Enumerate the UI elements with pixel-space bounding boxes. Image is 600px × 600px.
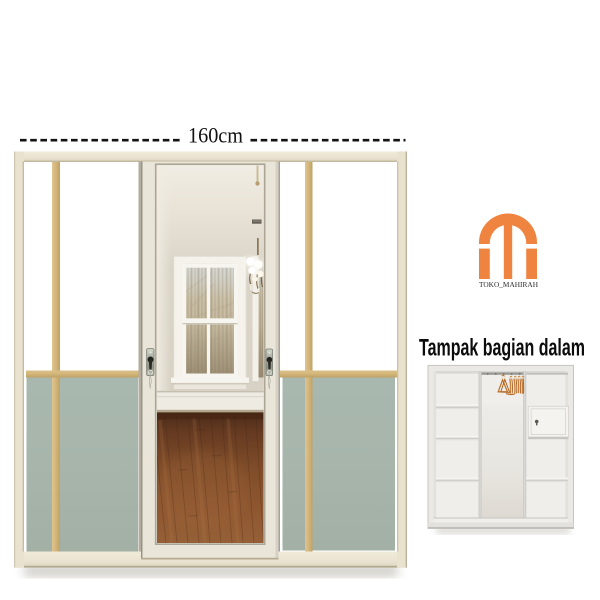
svg-text:160cm: 160cm bbox=[188, 123, 243, 148]
svg-text:Tampak bagian dalam: Tampak bagian dalam bbox=[419, 335, 585, 362]
svg-text:TOKO_MAHIRAH: TOKO_MAHIRAH bbox=[479, 280, 538, 289]
